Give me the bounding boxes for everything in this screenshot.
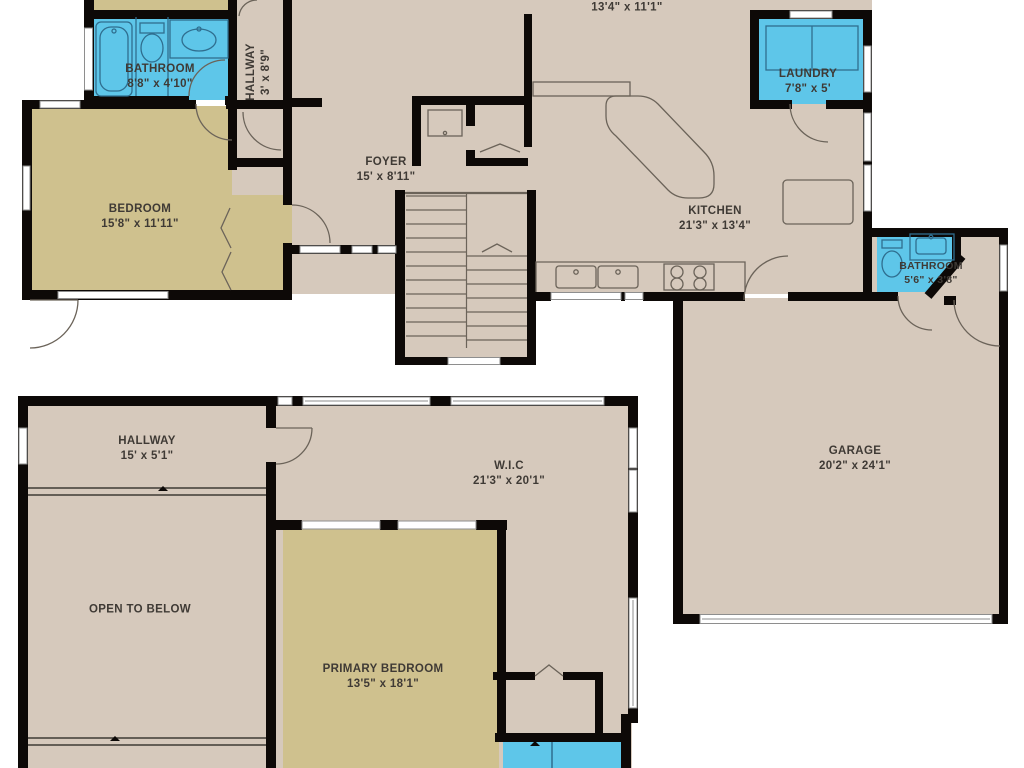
room-name: KITCHEN [679, 204, 751, 219]
room-label-wic: W.I.C 21'3" x 20'1" [473, 459, 545, 489]
room-name: PRIMARY BEDROOM [323, 662, 444, 677]
room-dims: 3' x 8'9" [259, 43, 274, 101]
room-name: BATHROOM [899, 260, 963, 274]
room-label-open-to-below: OPEN TO BELOW [89, 602, 191, 617]
second-floor-plan [18, 396, 638, 768]
floor-fills-2 [24, 402, 632, 768]
room-name: FOYER [357, 155, 416, 170]
room-label-bathroom-main: BATHROOM 5'6" x 3'8" [899, 260, 963, 288]
room-label-dining-partial: 13'4" x 11'1" [591, 0, 662, 15]
room-dims: 13'5" x 18'1" [323, 677, 444, 692]
room-dims: 15' x 5'1" [118, 449, 176, 464]
room-label-primary-bedroom: PRIMARY BEDROOM 13'5" x 18'1" [323, 662, 444, 692]
room-dims: 15'8" x 11'11" [101, 217, 179, 232]
room-dims: 7'8" x 5' [779, 82, 837, 97]
room-label-laundry: LAUNDRY 7'8" x 5' [779, 67, 837, 97]
room-name: LAUNDRY [779, 67, 837, 82]
room-dims: 21'3" x 20'1" [473, 474, 545, 489]
floor-plan-drawing [0, 0, 1024, 768]
room-label-bedroom: BEDROOM 15'8" x 11'11" [101, 202, 179, 232]
room-dims: 15' x 8'11" [357, 170, 416, 185]
room-label-garage: GARAGE 20'2" x 24'1" [819, 444, 891, 474]
room-name: W.I.C [473, 459, 545, 474]
room-name: GARAGE [819, 444, 891, 459]
floor-plan-canvas: 13'4" x 11'1" BATHROOM 8'8" x 4'10" HALL… [0, 0, 1024, 768]
room-label-kitchen: KITCHEN 21'3" x 13'4" [679, 204, 751, 234]
room-name: BEDROOM [101, 202, 179, 217]
room-label-bathroom-upper: BATHROOM 8'8" x 4'10" [125, 62, 195, 92]
room-label-hallway-upper: HALLWAY 3' x 8'9" [244, 43, 274, 101]
room-dims: 20'2" x 24'1" [819, 459, 891, 474]
room-dims: 13'4" x 11'1" [591, 0, 662, 15]
room-dims: 5'6" x 3'8" [899, 274, 963, 288]
room-label-hallway-lower: HALLWAY 15' x 5'1" [118, 434, 176, 464]
room-name: HALLWAY [118, 434, 176, 449]
room-label-foyer: FOYER 15' x 8'11" [357, 155, 416, 185]
room-dims: 8'8" x 4'10" [125, 77, 195, 92]
room-name: OPEN TO BELOW [89, 602, 191, 617]
room-name: HALLWAY [244, 43, 259, 101]
room-dims: 21'3" x 13'4" [679, 219, 751, 234]
room-name: BATHROOM [125, 62, 195, 77]
